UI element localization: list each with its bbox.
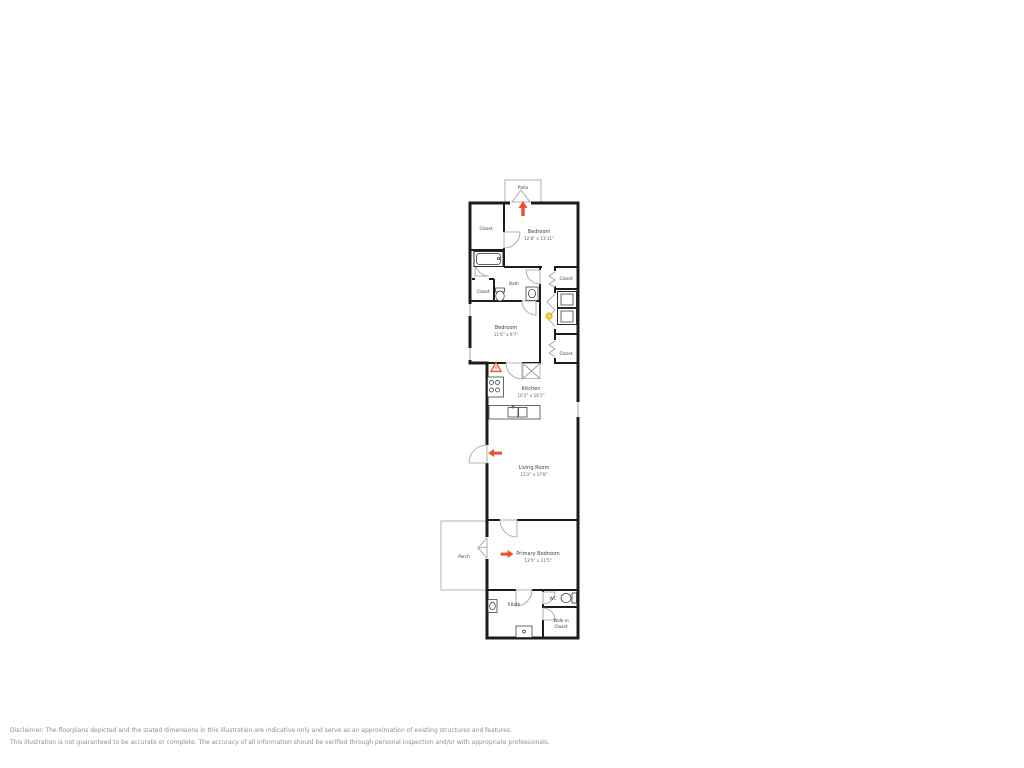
floorplan-drawing: Patio Closet Bedroom 12'8" x 13'11" Bath… bbox=[0, 0, 1024, 768]
kitchen-dims: 10'2" x 16'2" bbox=[517, 393, 544, 398]
bedroom-top-label: Bedroom bbox=[528, 229, 551, 235]
bedroom-mid-label: Bedroom bbox=[495, 325, 518, 331]
closet-tl-label: Closet bbox=[479, 226, 492, 231]
walk-in-closet-label-2: Closet bbox=[554, 624, 567, 629]
primary-bedroom-dims: 13'5" x 11'5" bbox=[524, 558, 551, 563]
living-room-dims: 15'2" x 17'8" bbox=[520, 472, 547, 477]
entry-arrow-left-shaft bbox=[494, 452, 502, 455]
living-room-label: Living Room bbox=[519, 465, 550, 471]
shower-drain bbox=[523, 630, 526, 633]
porch-label: Porch bbox=[458, 554, 470, 559]
pbath-sink-basin bbox=[490, 602, 496, 609]
utility-triangle-dot bbox=[495, 370, 496, 371]
dryer-door bbox=[561, 311, 573, 322]
bathtub-basin bbox=[477, 254, 501, 265]
kitchen-faucet bbox=[512, 406, 514, 408]
patio-label: Patio bbox=[518, 185, 529, 190]
bedroom-top-dims: 12'8" x 13'11" bbox=[524, 236, 554, 241]
wc-toilet-icon bbox=[561, 593, 571, 602]
entry-door bbox=[469, 445, 487, 463]
closet-tr-label: Closet bbox=[559, 276, 572, 281]
bath-label: Bath bbox=[509, 281, 519, 286]
toilet-icon bbox=[496, 291, 504, 301]
bathtub-faucet bbox=[497, 257, 499, 259]
washer-door bbox=[561, 294, 573, 305]
closet-br-label: Closet bbox=[559, 351, 572, 356]
walk-in-closet-label-1: Walk-in bbox=[553, 618, 569, 623]
disclaimer-line-2: This illustration is not guaranteed to b… bbox=[10, 739, 550, 746]
entry-arrow-right-shaft bbox=[501, 553, 508, 556]
bedroom-mid-dims: 11'6" x 9'7" bbox=[494, 332, 519, 337]
primary-bath-label: P.Bath bbox=[508, 602, 521, 607]
disclaimer-line-1: Disclaimer: The floorplans depicted and … bbox=[10, 727, 512, 734]
kitchen-sink bbox=[508, 408, 518, 418]
stove-icon bbox=[488, 377, 504, 397]
closet-small-label: Closet bbox=[476, 289, 489, 294]
wc-toilet-tank bbox=[572, 593, 577, 603]
kitchen-sink-2 bbox=[519, 408, 528, 418]
kitchen-label: Kitchen bbox=[522, 386, 541, 392]
bath-sink-basin bbox=[528, 289, 535, 297]
wc-label: WC bbox=[549, 596, 556, 601]
primary-bedroom-label: Primary Bedroom bbox=[516, 551, 560, 557]
entry-arrow-up-shaft bbox=[521, 208, 524, 216]
exterior-wall bbox=[470, 203, 578, 638]
